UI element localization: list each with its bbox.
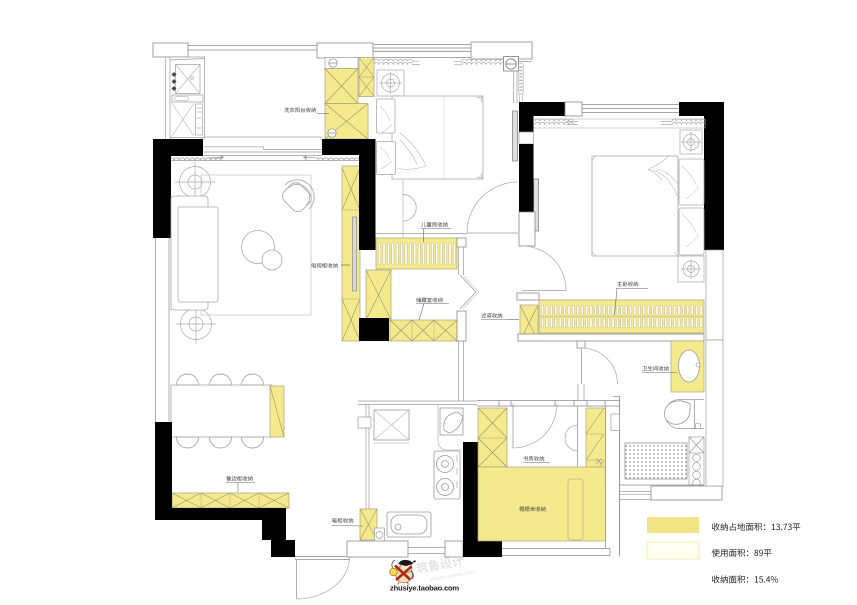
svg-text:zhusiye.taobao.com: zhusiye.taobao.com	[390, 584, 459, 593]
